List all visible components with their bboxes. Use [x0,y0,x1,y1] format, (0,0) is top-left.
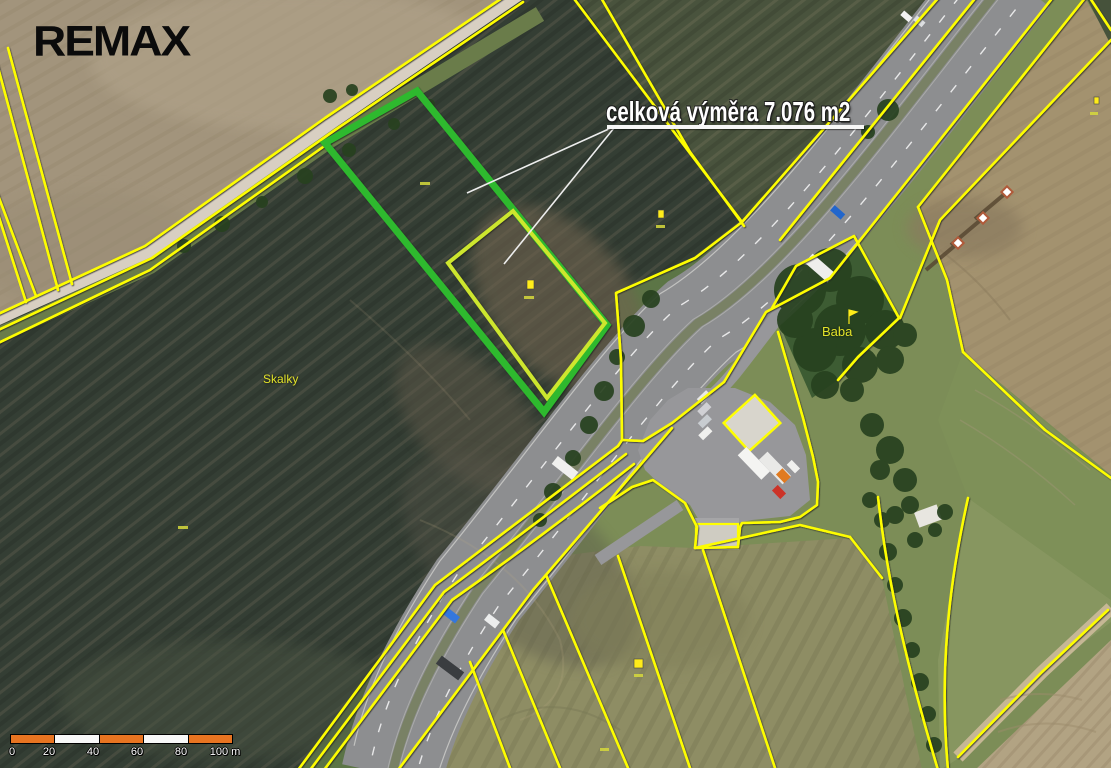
scale-segment [99,735,143,743]
remax-logo: REMAX [33,16,189,66]
parcel-point-marker [658,210,664,218]
place-label-skalky: Skalky [263,372,298,386]
scale-bar-segments [10,734,233,744]
scale-bar: 0 20 40 60 80 100 m [8,731,258,765]
area-annotation: celková výměra 7.076 m2 [606,96,850,128]
annotation-underline [607,125,864,129]
scale-tick-label: 40 [87,746,99,758]
parcel-point-marker [634,659,643,668]
scale-segment [188,735,232,743]
place-label-baba: Baba [822,324,852,339]
aerial-imagery [0,0,1111,768]
scale-segment [54,735,98,743]
scale-segment [143,735,187,743]
scale-tick-label: 80 [175,746,187,758]
scale-tick-label: 100 m [210,746,241,758]
parcel-point-marker [1094,97,1099,104]
scale-tick-label: 60 [131,746,143,758]
scale-segment [11,735,54,743]
parcel-point-marker [527,280,534,289]
aerial-map: REMAX celková výměra 7.076 m2 Skalky Bab… [0,0,1111,768]
scale-tick-label: 0 [9,746,15,758]
scale-tick-label: 20 [43,746,55,758]
